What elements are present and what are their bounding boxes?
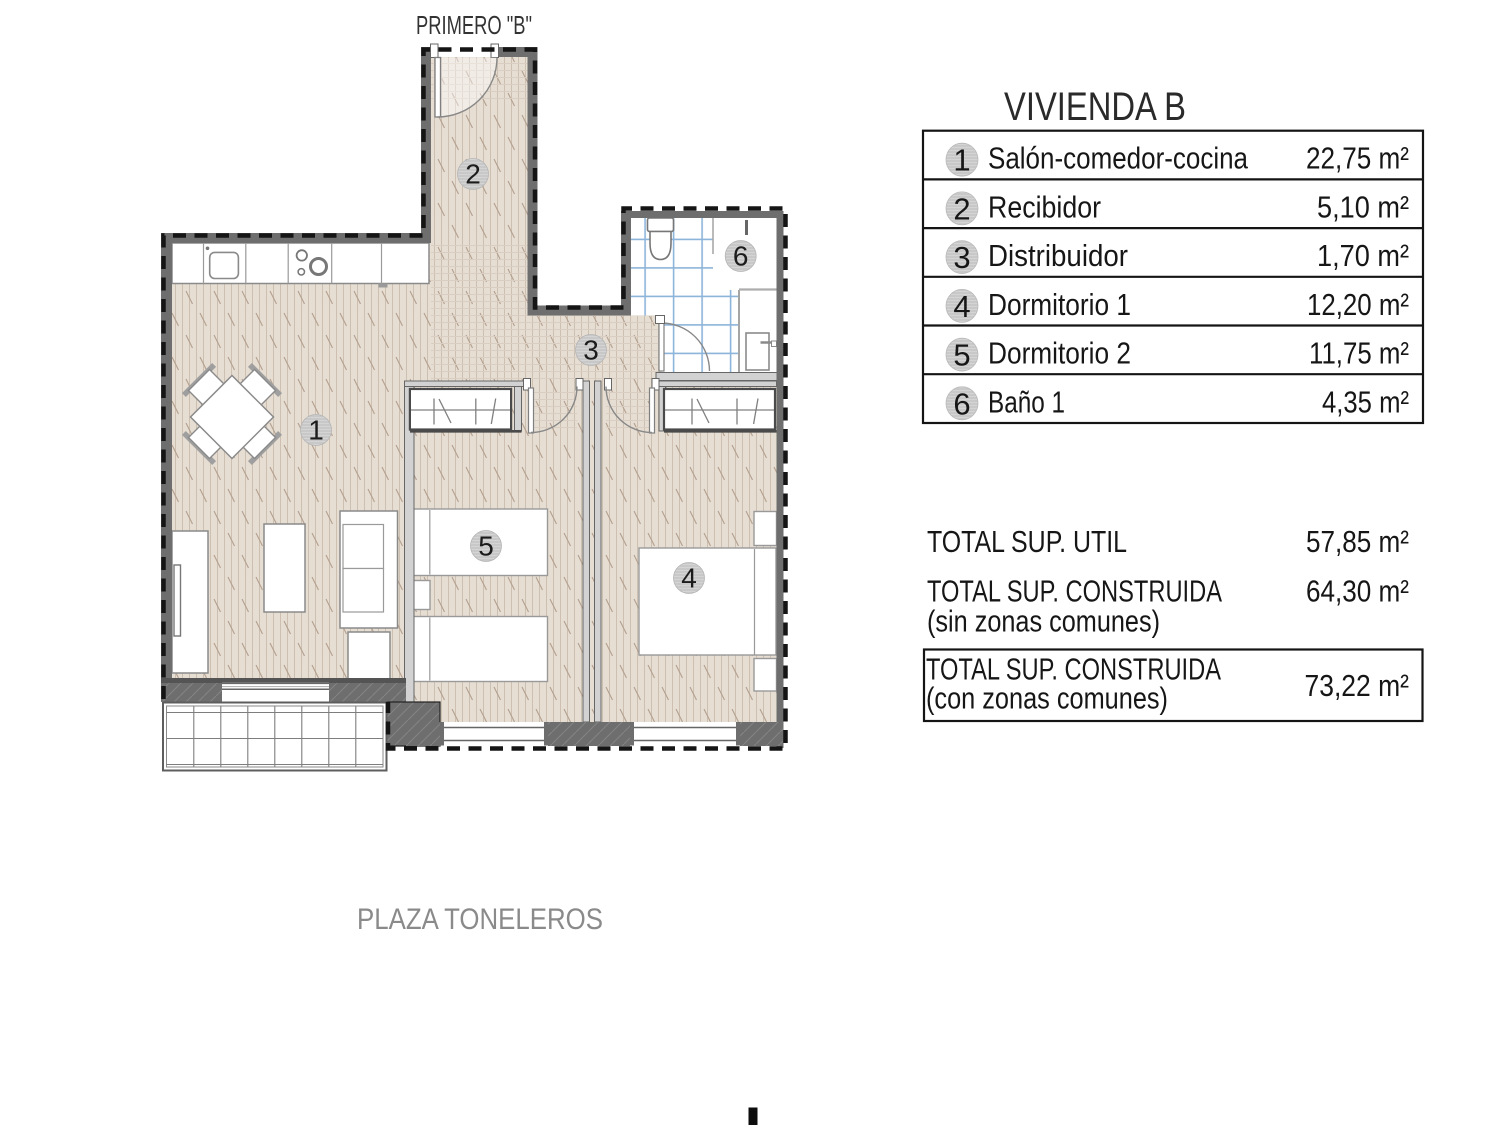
svg-text:73,22 m²: 73,22 m² <box>1305 668 1410 703</box>
svg-text:Dormitorio 1: Dormitorio 1 <box>988 287 1131 322</box>
svg-text:3: 3 <box>953 240 970 275</box>
svg-text:12,20 m²: 12,20 m² <box>1307 287 1409 322</box>
svg-text:1,70 m²: 1,70 m² <box>1317 238 1409 273</box>
svg-text:64,30 m²: 64,30 m² <box>1306 574 1409 609</box>
svg-text:22,75 m²: 22,75 m² <box>1306 141 1409 176</box>
svg-text:Dormitorio 2: Dormitorio 2 <box>988 336 1131 371</box>
svg-text:3: 3 <box>583 335 599 366</box>
svg-text:Distribuidor: Distribuidor <box>988 238 1128 273</box>
svg-text:5: 5 <box>953 338 970 373</box>
svg-text:4: 4 <box>953 289 970 324</box>
svg-text:6: 6 <box>733 241 749 272</box>
svg-text:5,10 m²: 5,10 m² <box>1317 189 1409 224</box>
svg-text:57,85 m²: 57,85 m² <box>1306 524 1409 559</box>
svg-text:4: 4 <box>681 563 697 594</box>
svg-text:Salón-comedor-cocina: Salón-comedor-cocina <box>988 141 1249 176</box>
svg-text:(sin zonas comunes): (sin zonas comunes) <box>927 604 1160 639</box>
svg-text:2: 2 <box>465 159 481 190</box>
svg-text:6: 6 <box>953 386 970 421</box>
svg-text:PLAZA TONELEROS: PLAZA TONELEROS <box>357 903 603 936</box>
svg-text:4,35 m²: 4,35 m² <box>1322 384 1409 419</box>
svg-text:2: 2 <box>953 191 970 226</box>
svg-text:VIVIENDA B: VIVIENDA B <box>1004 85 1186 129</box>
svg-text:Baño 1: Baño 1 <box>988 384 1065 419</box>
svg-text:1: 1 <box>953 143 970 178</box>
svg-text:TOTAL SUP. UTIL: TOTAL SUP. UTIL <box>927 524 1127 559</box>
svg-text:1: 1 <box>308 415 324 446</box>
svg-text:PRIMERO "B": PRIMERO "B" <box>416 12 532 40</box>
svg-text:(con zonas comunes): (con zonas comunes) <box>926 681 1168 716</box>
svg-text:11,75 m²: 11,75 m² <box>1309 336 1409 371</box>
svg-text:5: 5 <box>478 531 494 562</box>
svg-text:Recibidor: Recibidor <box>988 189 1101 224</box>
